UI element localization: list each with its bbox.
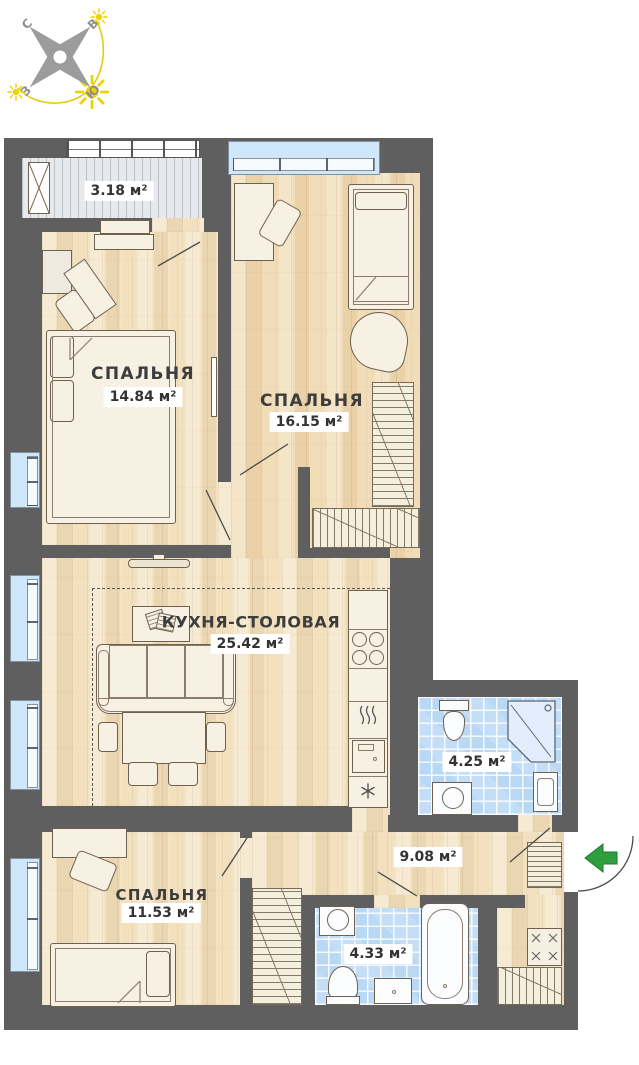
counter-divider: [349, 668, 387, 669]
wall-bedroom2-south: [310, 548, 390, 558]
wall-bedroom1-south: [40, 545, 231, 558]
door-leaf-bedroom-1: [211, 357, 217, 417]
dresser-bottom: [94, 234, 154, 250]
window-kitchen-1: [10, 575, 40, 662]
compass-center: [54, 51, 67, 64]
window-frame: [27, 704, 38, 788]
washer-drum: [442, 787, 464, 809]
label-bedroom-3: СПАЛЬНЯ: [116, 886, 209, 904]
window-bedroom-1: [10, 452, 40, 508]
sofa-cushion: [109, 645, 147, 698]
balcony-railing: [66, 140, 200, 158]
oven-detail: [358, 744, 374, 751]
dining-chair: [168, 762, 198, 786]
window-bedroom-2: [228, 141, 380, 175]
sun-icon-large: [76, 76, 107, 107]
wall-balcony-b: [204, 218, 218, 232]
compass: С В З Ю: [0, 0, 121, 118]
toilet-tank-2: [326, 996, 360, 1005]
sofa: [96, 644, 236, 714]
bathroom-1-door-gap-floor: [518, 815, 552, 832]
sun-icon: [91, 9, 107, 25]
washer-drum: [327, 909, 349, 931]
counter-divider: [349, 629, 387, 630]
oven-knob: [373, 757, 377, 761]
bathtub: [421, 903, 469, 1005]
stove-burner: [352, 650, 367, 665]
floor-plan: 3.18 м² СПАЛЬНЯ 14.84 м² СПАЛЬНЯ 16.15 м…: [0, 0, 639, 1065]
dining-chair: [206, 722, 226, 752]
sink-basin: [537, 778, 554, 806]
compass-south: Ю: [83, 82, 103, 102]
wall-bedroom3-right-a: [240, 832, 252, 838]
bathtub-drain: [443, 984, 447, 988]
bedroom-3-door-gap-floor: [240, 838, 252, 878]
dining-chair: [98, 722, 118, 752]
window-bedroom-3: [10, 858, 40, 972]
dining-chair: [128, 762, 158, 786]
area-bedroom-2: 16.15 м²: [270, 412, 349, 432]
mattress: [55, 948, 171, 1002]
window-frame: [233, 158, 375, 171]
compass-north: С: [19, 16, 35, 32]
wardrobe-bedroom-2-south: [312, 508, 420, 548]
shoe-cabinet: [527, 842, 562, 888]
stove-burner: [369, 650, 384, 665]
sofa-back: [98, 698, 234, 712]
blanket-fold: [353, 276, 409, 302]
wardrobe-entry: [497, 967, 562, 1005]
entry-cabinet: [527, 928, 562, 966]
entrance-opening: [564, 832, 578, 892]
tv: [128, 559, 190, 568]
bedroom-1-doorway-floor: [218, 482, 231, 545]
wardrobe-bedroom-2: [372, 382, 414, 507]
kitchen-hall-opening-floor: [352, 806, 390, 832]
area-bedroom-3: 11.53 м²: [122, 903, 201, 923]
kitchen-counter: [348, 590, 388, 808]
toilet-bowl-2: [328, 966, 358, 998]
wall-bathroom1-bottom-a: [388, 815, 518, 832]
balcony-cabinet: [28, 162, 50, 214]
wall-bathroom2-right: [478, 895, 497, 1005]
oven: [352, 740, 385, 773]
dining-table: [122, 712, 206, 764]
counter-divider: [349, 776, 387, 777]
wall-bathroom1-bottom-b: [552, 815, 562, 832]
stove-burner: [369, 632, 384, 647]
area-kitchen: 25.42 м²: [211, 634, 290, 654]
sofa-cushion: [147, 645, 185, 698]
counter-divider: [349, 738, 387, 739]
wall-bedroom3-right-b: [240, 878, 252, 1005]
entrance-arrow-icon: [585, 844, 617, 872]
compass-east: В: [85, 16, 101, 32]
label-bedroom-1: СПАЛЬНЯ: [91, 364, 195, 384]
counter-divider: [349, 701, 387, 702]
hall-closet: [252, 888, 302, 1005]
wall-bedroom-divider: [218, 158, 231, 482]
area-bathroom-2: 4.33 м²: [344, 944, 413, 964]
compass-star: [0, 0, 121, 118]
bathroom-sink-2: [374, 978, 412, 1004]
compass-west: З: [18, 83, 34, 99]
window-frame: [27, 579, 38, 660]
dresser-top: [100, 220, 150, 234]
entrance-door-swing: [578, 836, 633, 891]
window-frame: [27, 862, 38, 970]
window-kitchen-2: [10, 700, 40, 790]
balcony-door-gap-floor: [152, 218, 204, 232]
label-bedroom-2: СПАЛЬНЯ: [260, 391, 364, 411]
window-frame: [27, 456, 38, 506]
label-kitchen: КУХНЯ-СТОЛОВАЯ: [162, 613, 341, 632]
bathroom-sink: [533, 772, 558, 812]
bathroom-2-door-gap-floor: [374, 895, 420, 908]
area-hallway: 9.08 м²: [394, 847, 463, 867]
stove-burner: [352, 632, 367, 647]
toilet-tank: [439, 700, 469, 711]
sink-drain: [392, 990, 396, 994]
area-balcony: 3.18 м²: [85, 181, 154, 201]
area-bathroom-1: 4.25 м²: [443, 752, 512, 772]
area-bedroom-1: 14.84 м²: [104, 387, 183, 407]
wall-hall-pier: [298, 467, 310, 558]
sun-icon: [8, 84, 24, 100]
